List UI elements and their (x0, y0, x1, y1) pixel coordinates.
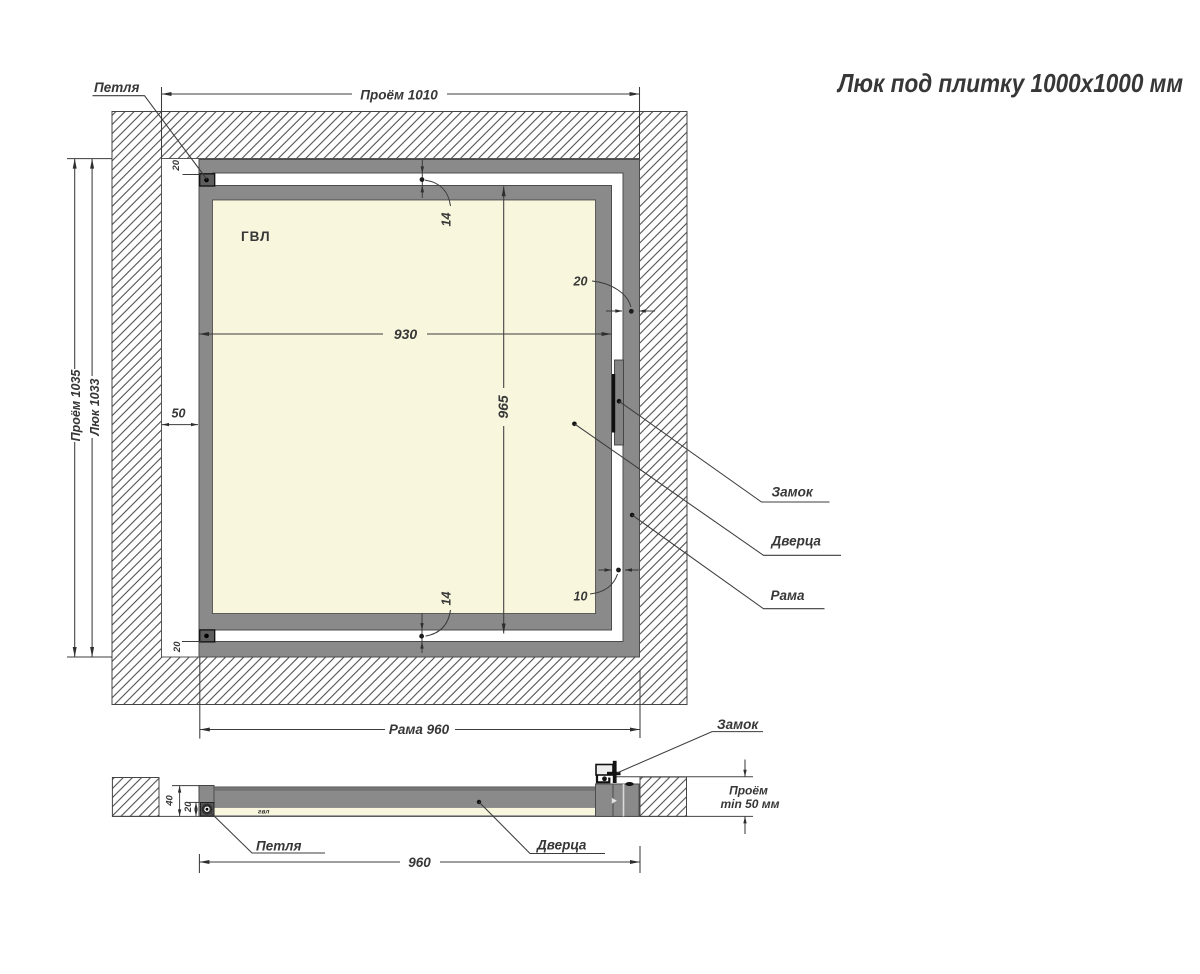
svg-text:930: 930 (394, 326, 418, 342)
svg-text:Петля: Петля (94, 80, 139, 95)
svg-text:20: 20 (171, 159, 182, 171)
svg-text:Рама 960: Рама 960 (389, 722, 450, 737)
svg-text:20: 20 (183, 801, 194, 813)
svg-text:Люк 1033: Люк 1033 (88, 378, 102, 436)
svg-text:Дверца: Дверца (771, 534, 822, 549)
svg-text:960: 960 (408, 855, 431, 870)
svg-text:965: 965 (495, 395, 511, 419)
svg-text:Рама: Рама (771, 588, 805, 603)
svg-text:гвл: гвл (258, 809, 269, 816)
svg-text:50: 50 (172, 407, 186, 421)
svg-text:14: 14 (440, 213, 454, 227)
svg-text:Замок: Замок (717, 717, 759, 732)
svg-text:Замок: Замок (772, 485, 814, 500)
svg-text:Люк под плитку 1000х1000 мм: Люк под плитку 1000х1000 мм (836, 68, 1183, 98)
svg-text:Дверца: Дверца (536, 838, 587, 853)
svg-text:20: 20 (573, 275, 588, 289)
svg-text:20: 20 (172, 641, 183, 653)
svg-text:ГВЛ: ГВЛ (241, 229, 271, 244)
svg-text:Петля: Петля (256, 839, 301, 854)
svg-text:Проём: Проём (729, 784, 768, 798)
svg-text:14: 14 (440, 592, 454, 606)
svg-text:Проём 1010: Проём 1010 (360, 88, 438, 103)
svg-text:min 50 мм: min 50 мм (720, 797, 779, 811)
svg-text:10: 10 (574, 590, 588, 604)
svg-text:Проём 1035: Проём 1035 (69, 369, 83, 442)
svg-text:40: 40 (165, 795, 176, 807)
